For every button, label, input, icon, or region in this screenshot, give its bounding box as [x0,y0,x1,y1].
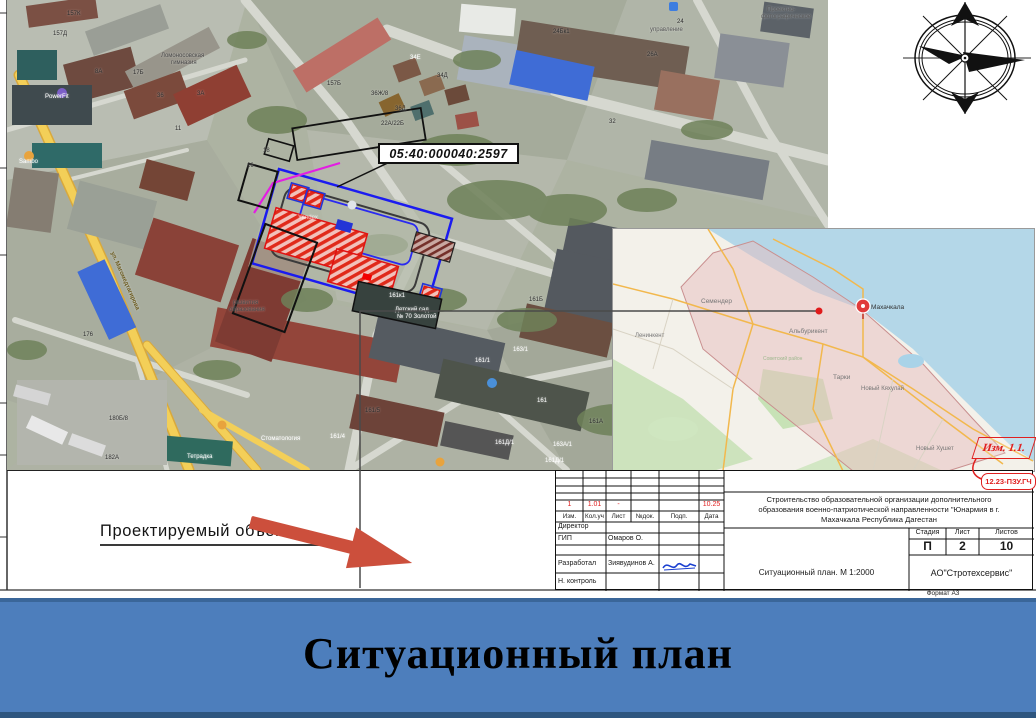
name-gip: Омаров О. [606,533,661,545]
format-note: Формат А3 [903,590,983,597]
name-developer: Зиявудинов А. [606,555,661,573]
sheets-label: Листов [979,528,1034,539]
company-name: АО"Стротехсервис" [909,555,1034,591]
role-ncontrol: Н. контроль [556,573,608,591]
role-gip: ГИП [556,533,608,545]
role-director: Директор [556,522,608,533]
banner-bottom-strip [0,712,1036,718]
document-code-stamp: 12.23-ПЗУ.ГЧ [981,473,1036,490]
col-data: Дата [699,511,724,522]
revision-mark-stamp: Изм. 1.1. [971,437,1036,459]
sheets-value: 10 [979,539,1034,555]
rev-date: 10.25 [699,500,724,511]
stage-label: Стадия [909,528,946,539]
title-banner: Ситуационный план [0,598,1036,718]
col-kol: Кол.уч [583,511,606,522]
rev-kol: 1.01 [583,500,606,511]
projected-object-label: Проектируемый объект [100,522,334,546]
situational-plan-sheet: { "banner": { "title": "Ситуационный пла… [0,0,1036,718]
stage-value: П [909,539,946,555]
role-developer: Разработал [556,555,608,573]
col-doc: №док. [631,511,659,522]
sheet-label: Лист [946,528,979,539]
title-block: 1 1.01 - 10.25 Изм. Кол.уч Лист №док. По… [555,470,1033,590]
page-title: Ситуационный план [0,602,1036,679]
regional-map: МахачкалаСемендерЛенинкентАльбурикентТар… [612,228,1035,472]
col-list: Лист [606,511,631,522]
rev-list: - [606,500,631,511]
rev-izm: 1 [556,500,583,511]
cadastral-number-label: 05:40:000040:2597 [378,143,519,164]
drawing-title: Ситуационный план. М 1:2000 [724,528,909,591]
signature-scribble [662,559,698,573]
compass-rose [903,2,1031,114]
col-izm: Изм. [556,511,583,522]
project-description: Строительство образовательной организаци… [726,492,1032,528]
sheet-value: 2 [946,539,979,555]
col-podp: Подп. [659,511,699,522]
